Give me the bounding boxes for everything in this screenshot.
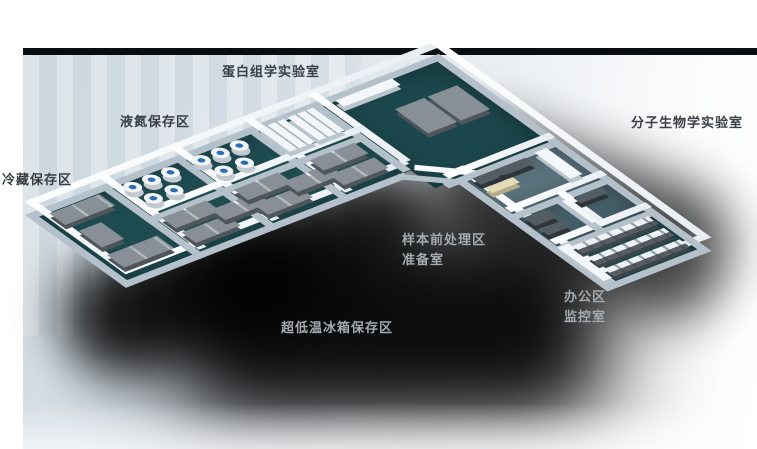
label-office-area: 办公区 xyxy=(564,286,606,305)
label-proteomics-lab: 蛋白组学实验室 xyxy=(222,61,320,80)
label-ult-freezer-storage: 超低温冰箱保存区 xyxy=(281,317,393,336)
label-liquid-nitrogen-storage: 液氮保存区 xyxy=(120,111,190,130)
backdrop-top-edge xyxy=(23,48,757,55)
label-sample-pretreatment: 样本前处理区 xyxy=(402,229,486,248)
lab-floorplan-render: 蛋白组学实验室 液氮保存区 冷藏保存区 分子生物学实验室 样本前处理区 准备室 … xyxy=(0,0,757,449)
label-monitoring-room: 监控室 xyxy=(564,306,606,325)
label-prep-room: 准备室 xyxy=(402,249,444,268)
label-molecular-biology-lab: 分子生物学实验室 xyxy=(631,112,743,131)
label-cold-storage: 冷藏保存区 xyxy=(2,169,72,188)
bottom-fade xyxy=(0,403,757,449)
